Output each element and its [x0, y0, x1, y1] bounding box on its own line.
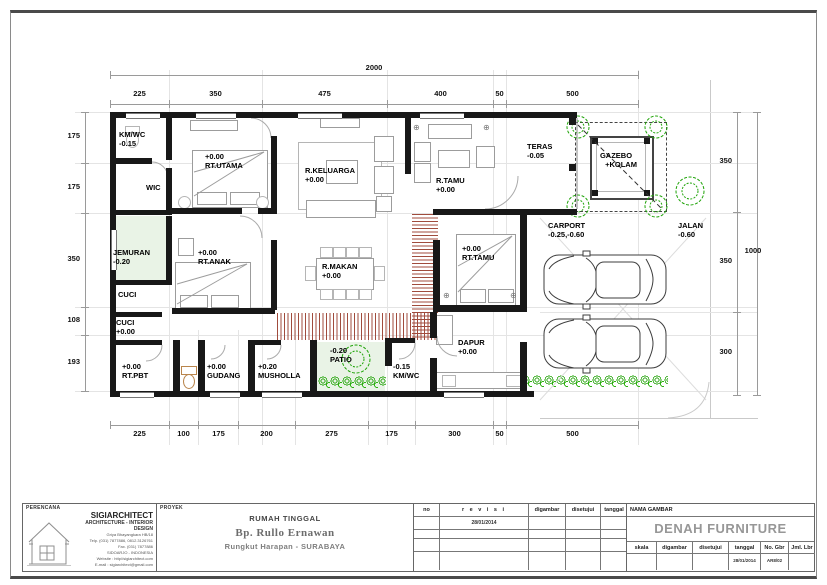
dim-line-top	[110, 104, 638, 105]
dim-label: 300	[706, 347, 732, 356]
dim-tick	[733, 395, 741, 396]
dim-tick	[415, 421, 416, 429]
dim-tick	[110, 421, 111, 429]
wall-segment	[433, 209, 577, 215]
dim-label: 500	[559, 89, 586, 98]
room-label-rt-tamu-guest: +0.00RT.TAMU	[462, 244, 494, 262]
window	[196, 113, 236, 119]
rev-header-tanggal: tanggal	[601, 504, 627, 517]
meta-tanggal-value: 28/01/2014	[729, 554, 761, 570]
dim-label-right-total: 1000	[738, 246, 768, 255]
room-label-patio: -0.20PATIO	[330, 346, 352, 364]
dim-label: 175	[56, 182, 80, 191]
dim-label: 175	[378, 429, 405, 438]
client-name: Bp. Rullo Ernawan	[157, 527, 413, 539]
window	[120, 392, 154, 398]
room-label-gazebo: GAZEBO+KOLAM	[588, 151, 644, 169]
rev-cell	[601, 539, 627, 552]
rev-header-revisi: r e v i s i	[440, 504, 529, 517]
rev-cell	[414, 552, 440, 570]
dim-label: 50	[486, 429, 513, 438]
project-text: RUMAH TINGGAL Bp. Rullo Ernawan Rungkut …	[157, 514, 413, 551]
site-diagonals	[540, 218, 706, 400]
window	[126, 113, 160, 119]
drawing-name-section: NAMA GAMBAR DENAH FURNITURE skala digamb…	[626, 504, 814, 571]
room-label-gudang: +0.00GUDANG	[207, 362, 240, 380]
dim-tick	[81, 391, 89, 392]
dim-tick	[81, 213, 89, 214]
room-label-jemuran: JEMURAN-0.20	[113, 248, 150, 266]
project-name: RUMAH TINGGAL	[157, 514, 413, 523]
project-location: Rungkut Harapan - SURABAYA	[157, 542, 413, 551]
dim-label: 193	[56, 357, 80, 366]
room-label-r-tamu: R.TAMU+0.00	[436, 176, 465, 194]
dim-line-bottom	[110, 425, 638, 426]
room-label-kmwc-top: KM/WC-0.15	[119, 130, 145, 148]
rev-cell	[529, 539, 566, 552]
rev-cell	[440, 539, 529, 552]
perencana-label: PERENCANA	[26, 505, 60, 511]
wall-segment	[198, 340, 205, 393]
wall-segment	[271, 136, 277, 208]
dim-tick	[506, 421, 507, 429]
floor-plan-sheet: ⊕ ⊕ ⊕ ⊕	[0, 0, 827, 585]
rev-cell	[529, 530, 566, 539]
room-label-cuci-upper: CUCI	[118, 290, 136, 299]
dim-tick	[198, 421, 199, 429]
dim-tick	[169, 421, 170, 429]
firm-name: SIGIARCHITECT	[69, 511, 153, 520]
wall-segment	[433, 305, 527, 312]
dim-tick	[753, 395, 761, 396]
rev-cell	[566, 539, 601, 552]
dim-tick	[262, 100, 263, 108]
rev-header-disetujui: disetujui	[566, 504, 601, 517]
meta-cell	[693, 554, 729, 570]
wall-segment	[430, 312, 437, 338]
room-label-rt-anak: +0.00RT.ANAK	[198, 248, 231, 266]
window	[444, 392, 484, 398]
dim-label: 500	[559, 429, 586, 438]
road-corner	[668, 382, 709, 418]
room-label-musholla: +0.20MUSHOLLA	[258, 362, 301, 380]
dim-tick	[81, 307, 89, 308]
wall-segment	[271, 240, 277, 310]
room-label-kmwc-btm: -0.15KM/WC	[393, 362, 419, 380]
rev-cell	[566, 530, 601, 539]
dim-label-total: 2000	[354, 63, 394, 72]
dim-tick	[81, 335, 89, 336]
wall-segment	[110, 280, 172, 285]
rev-cell	[601, 552, 627, 570]
wall-segment	[430, 358, 437, 394]
meta-cell	[657, 554, 693, 570]
dim-label: 350	[706, 256, 732, 265]
rev-cell	[440, 552, 529, 570]
meta-header-jml-lbr: Jml. Lbr	[789, 542, 815, 554]
revision-table: no r e v i s i digambar disetujui tangga…	[413, 504, 626, 571]
dim-tick	[110, 100, 111, 108]
dim-label: 225	[126, 89, 153, 98]
meta-header-skala: skala	[627, 542, 657, 554]
proyek-label: PROYEK	[160, 505, 183, 511]
dim-label: 200	[253, 429, 280, 438]
wall-segment	[248, 340, 255, 393]
wall-segment	[405, 112, 411, 174]
dim-tick	[368, 421, 369, 429]
dim-tick	[81, 112, 89, 113]
dim-label: 475	[311, 89, 338, 98]
dim-tick	[638, 100, 639, 108]
room-label-teras: TERAS-0.05	[527, 142, 552, 160]
rev-cell	[601, 517, 627, 530]
title-block: PERENCANA SIGIARCHITECT ARCHITECTURE - I…	[22, 503, 815, 572]
teras-column	[569, 164, 576, 171]
wall-segment	[433, 240, 440, 310]
dim-label: 175	[205, 429, 232, 438]
dim-tick	[169, 100, 170, 108]
room-label-rt-utama: +0.00RT.UTAMA	[205, 152, 243, 170]
rev-cell	[414, 539, 440, 552]
firm-tagline: ARCHITECTURE - INTERIOR DESIGN	[69, 520, 153, 532]
firm-text: SIGIARCHITECT ARCHITECTURE - INTERIOR DE…	[69, 511, 153, 568]
rev-cell	[414, 517, 440, 530]
wall-segment	[110, 112, 577, 118]
wall-segment	[255, 340, 281, 345]
dim-label: 175	[56, 131, 80, 140]
rev-cell	[566, 517, 601, 530]
dim-tick	[638, 71, 639, 79]
room-label-r-keluarga: R.KELUARGA+0.00	[305, 166, 355, 184]
dim-label: 300	[441, 429, 468, 438]
dim-tick	[733, 312, 741, 313]
rev-cell	[601, 530, 627, 539]
rev-cell	[529, 552, 566, 570]
title-block-firm-section: PERENCANA SIGIARCHITECT ARCHITECTURE - I…	[23, 504, 156, 571]
dim-label: 350	[56, 254, 80, 263]
door-arcs	[146, 118, 518, 361]
wall-segment	[172, 208, 242, 214]
dim-label: 350	[706, 156, 732, 165]
rev-cell	[440, 530, 529, 539]
title-block-project-section: PROYEK RUMAH TINGGAL Bp. Rullo Ernawan R…	[156, 504, 413, 571]
wall-segment	[385, 338, 415, 343]
rev-header-no: no	[414, 504, 440, 517]
dim-label: 225	[126, 429, 153, 438]
rev-cell	[566, 552, 601, 570]
site-label-jalan: JALAN-0.60	[678, 221, 703, 239]
meta-header-digambar: digambar	[657, 542, 693, 554]
wall-segment	[110, 210, 172, 215]
meta-cell	[789, 554, 815, 570]
dim-line-top-total	[110, 75, 638, 76]
wall-segment	[110, 312, 162, 317]
teras-column	[569, 118, 576, 125]
dim-tick	[81, 163, 89, 164]
wall-segment	[166, 112, 172, 160]
dim-label: 275	[318, 429, 345, 438]
rev-date-value: 28/01/2014	[440, 517, 529, 530]
dim-tick	[387, 100, 388, 108]
firm-address-line: E-mail : sigiarchitect@gmail.com	[69, 562, 153, 568]
meta-cell	[627, 554, 657, 570]
room-label-dapur: DAPUR+0.00	[458, 338, 485, 356]
wall-segment	[258, 208, 277, 214]
window	[210, 392, 240, 398]
room-label-r-makan: R.MAKAN+0.00	[322, 262, 357, 280]
dim-tick	[110, 71, 111, 79]
wall-segment	[310, 340, 317, 393]
window	[262, 392, 302, 398]
window	[420, 113, 464, 119]
wall-segment	[520, 342, 527, 392]
dim-tick	[506, 100, 507, 108]
dim-tick	[238, 421, 239, 429]
meta-header-no-gbr: No. Gbr	[761, 542, 789, 554]
firm-logo-house-icon	[27, 516, 71, 566]
dim-label: 50	[486, 89, 513, 98]
dim-tick	[733, 112, 741, 113]
dim-tick	[638, 421, 639, 429]
dim-line-left	[85, 112, 86, 391]
site-label-carport: CARPORT-0.25,-0.60	[548, 221, 585, 239]
dim-tick	[493, 421, 494, 429]
rev-header-digambar: digambar	[529, 504, 566, 517]
dim-label: 400	[427, 89, 454, 98]
meta-no-gbr-value: AR8/02	[761, 554, 789, 570]
dim-label: 350	[202, 89, 229, 98]
meta-header-tanggal: tanggal	[729, 542, 761, 554]
dim-label: 100	[170, 429, 197, 438]
nama-gambar-label: NAMA GAMBAR	[627, 504, 814, 517]
rev-cell	[529, 517, 566, 530]
dim-tick	[753, 112, 761, 113]
dim-label: 108	[56, 315, 80, 324]
rev-cell	[414, 530, 440, 539]
wall-segment	[166, 216, 172, 282]
room-label-cuci-lower: CUCI+0.00	[116, 318, 135, 336]
wall-segment	[110, 158, 152, 164]
meta-header-disetujui: disetujui	[693, 542, 729, 554]
car	[544, 251, 666, 373]
dim-tick	[493, 100, 494, 108]
wall-segment	[520, 215, 527, 312]
wall-segment	[172, 308, 275, 314]
drawing-title: DENAH FURNITURE	[627, 517, 814, 542]
wall-segment	[173, 340, 180, 393]
window	[298, 113, 342, 119]
dim-tick	[295, 421, 296, 429]
room-label-wic: WIC	[146, 183, 161, 192]
dim-tick	[733, 212, 741, 213]
room-label-rt-pbt: +0.00RT.PBT	[122, 362, 148, 380]
wall-segment	[116, 340, 162, 345]
